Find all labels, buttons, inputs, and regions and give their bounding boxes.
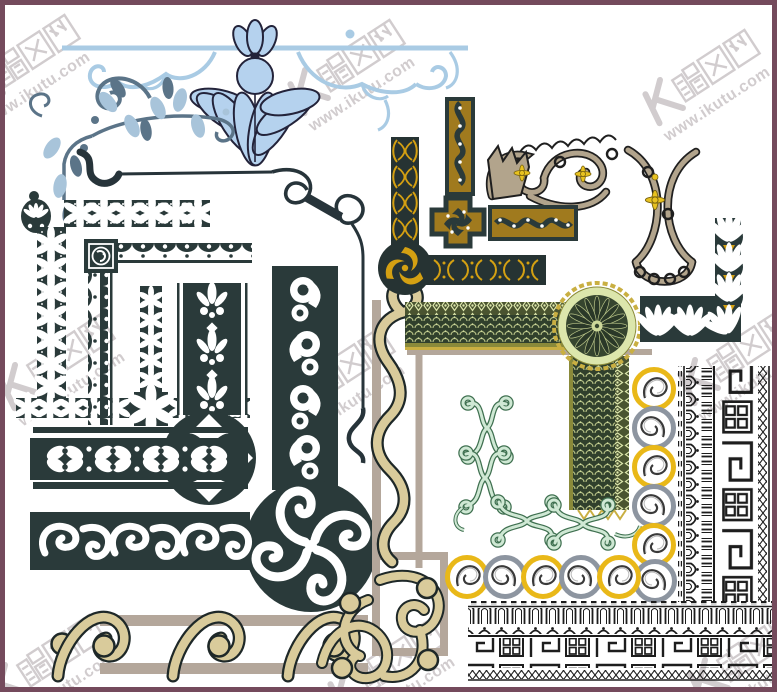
pinwheel-circle-medallion [245,480,377,612]
certificate-rosette [554,283,640,369]
fan-ornament [188,20,322,168]
daisy-band-left [33,225,69,405]
ornament-art [5,5,772,687]
fleur-band [177,282,248,415]
daisy-band-top [62,194,216,232]
swirl-chain-band [30,512,250,570]
square-swirl-medallion [84,239,118,273]
scallop-band-horizontal [118,243,252,263]
chain-band [272,266,338,490]
oval-daisy-medallion [21,191,51,233]
clipart-canvas: www.ikutu.com www.ikutu.com [0,0,777,692]
